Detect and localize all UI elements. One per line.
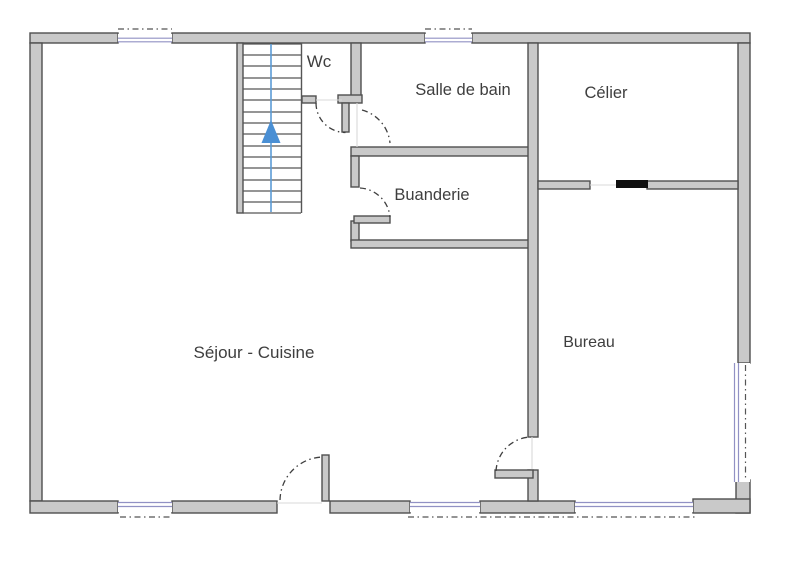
door-swing-arc-sejour	[280, 457, 323, 500]
staircase	[243, 43, 302, 213]
window-right-bureau	[733, 363, 750, 482]
room-label-bureau: Bureau	[563, 334, 615, 351]
door-leaf-buanderie	[354, 216, 390, 223]
inner-walls	[237, 43, 738, 501]
door-swing-arc-buanderie	[360, 188, 390, 217]
window-top-left	[118, 29, 172, 42]
window-bottom-center	[410, 502, 480, 512]
door-salle-de-bain	[357, 103, 390, 147]
floor-plan-drawing: Wc Salle de bain Célier Buanderie Bureau…	[0, 0, 800, 561]
room-label-celier: Célier	[584, 84, 628, 102]
outer-walls	[30, 33, 750, 513]
wall-celier-bottom-right	[647, 181, 738, 189]
window-bottom-left	[118, 502, 172, 517]
window-top-center	[425, 29, 472, 42]
wall	[738, 43, 750, 363]
wall-buanderie-left-bottom	[351, 221, 359, 241]
wall-stair-left	[237, 43, 243, 213]
wall	[30, 43, 42, 501]
wall	[172, 33, 425, 43]
door-swing-arc-bureau	[496, 437, 531, 471]
wall	[472, 33, 750, 43]
room-labels: Wc Salle de bain Célier Buanderie Bureau…	[194, 52, 629, 362]
wall-buanderie-bottom	[351, 240, 534, 248]
wall-wc-lintel	[338, 95, 362, 103]
room-label-wc: Wc	[307, 52, 332, 71]
wall	[172, 501, 277, 513]
door-bureau	[495, 437, 533, 478]
door-leaf-sejour	[322, 455, 329, 501]
door-leaf-wc	[342, 103, 349, 132]
wall	[30, 33, 118, 43]
celier-sliding-door	[616, 180, 648, 188]
wall	[480, 501, 575, 513]
wall-celier-bottom-left	[538, 181, 590, 189]
window-opening	[733, 363, 750, 482]
wall	[30, 501, 118, 513]
door-wc	[316, 100, 349, 133]
wall	[330, 501, 410, 513]
room-label-buanderie: Buanderie	[394, 186, 469, 204]
wall-wc-stub	[302, 96, 316, 103]
wall-wc-sdb	[351, 43, 361, 96]
wall-buanderie-left-top	[351, 156, 359, 187]
door-buanderie	[354, 188, 390, 223]
floor-plan-page: Wc Salle de bain Célier Buanderie Bureau…	[0, 0, 800, 561]
room-label-salle-de-bain: Salle de bain	[415, 81, 510, 99]
room-label-sejour-cuisine: Séjour - Cuisine	[194, 343, 315, 362]
wall	[693, 499, 750, 513]
door-sejour-entrance	[277, 455, 329, 503]
wall-main-vertical	[528, 43, 538, 437]
door-celier-sliding	[590, 180, 648, 188]
wall-sdb-bottom	[351, 147, 534, 156]
door-swing-arc-wc	[316, 103, 346, 133]
door-leaf-bureau	[495, 470, 533, 478]
door-swing-arc-sdb	[362, 110, 390, 143]
